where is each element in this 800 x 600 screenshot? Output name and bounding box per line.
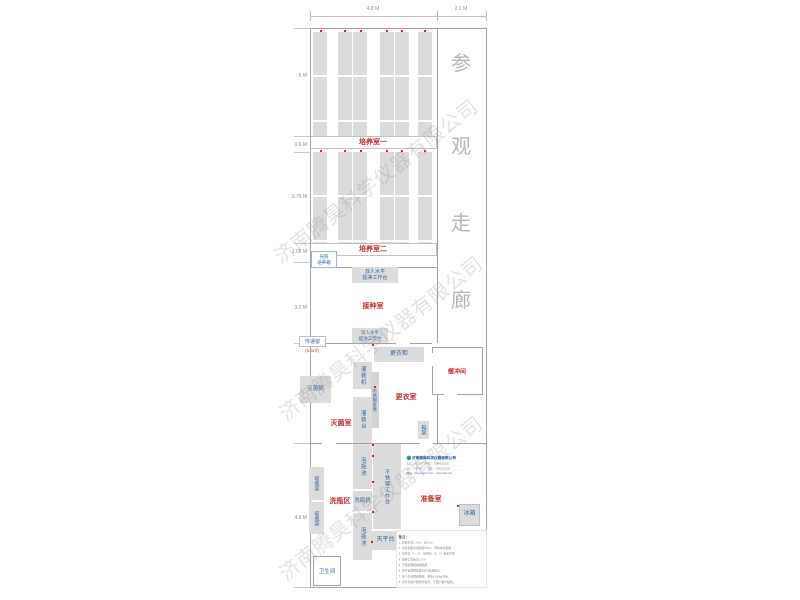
company-logo-icon [407, 455, 411, 459]
notes-inner: 备注： 1. 培养架长1.25m，宽0.5m 2. 培养架距离墙面留35cm，预… [397, 534, 486, 585]
power-dot [374, 386, 376, 388]
notes-title: 备注： [399, 534, 486, 539]
corridor-char-1: 参 [449, 47, 473, 76]
room-label-washing-area: 洗瓶区 [330, 496, 351, 506]
room-label-prep: 准备室 [421, 494, 442, 504]
company-name: 济南腾昊科学仪器有限公司 [412, 455, 456, 460]
filling-machine: 灌装机 [353, 362, 372, 389]
dimension-label-left: 4.9 M [281, 515, 307, 521]
clean-bench-1: 双人水平超净工作台 [352, 267, 398, 283]
dimension-tick [437, 11, 438, 21]
culture-shelf [418, 152, 432, 243]
soak-pool-1: 泡瓶池 [353, 444, 372, 489]
power-dot [372, 481, 374, 483]
power-dot [386, 150, 388, 152]
power-dot [360, 150, 362, 152]
power-dot [360, 30, 362, 32]
power-dot [424, 150, 426, 152]
dimension-tick [310, 11, 311, 21]
lab-floorplan: 济南腾昊科学仪器有限公司 济南腾昊科学仪器有限公司 济南腾昊科学仪器有限公司 4… [0, 0, 800, 600]
company-info-inner: 济南腾昊科学仪器有限公司 电话：0531-87799827、1586602255… [406, 455, 464, 475]
wall [310, 28, 487, 29]
balance-table: 天平台 [372, 531, 399, 550]
clean-bench-label: 双人水平超净工作台 [362, 269, 387, 281]
culture-shelf [395, 152, 409, 243]
dim-tick [294, 28, 310, 29]
dimension-line-top [310, 16, 487, 17]
company-info-card: 济南腾昊科学仪器有限公司 电话：0531-87799827、1586602255… [406, 452, 464, 492]
dimension-label-left: 0.6 M [281, 142, 307, 148]
dim-tick [294, 243, 310, 244]
stainless-bench: 不锈钢条凳 [371, 372, 379, 428]
locker: 更衣柜 [374, 347, 424, 362]
dim-tick [294, 443, 310, 444]
culture-shelf [353, 152, 367, 243]
door-opening [444, 394, 457, 397]
light-incubator: 光照培养箱 [311, 251, 337, 268]
power-dot [401, 30, 403, 32]
dim-tick [294, 587, 310, 588]
power-dot [320, 150, 322, 152]
wall [437, 395, 438, 443]
wall [437, 28, 438, 343]
pass-window: 传递窗 [299, 336, 326, 347]
drying-rack-1: 晾瓶架 [309, 467, 324, 500]
note-item: 8. 培养室窗户做遮光窗帘，不要小窗户贴膜。 [399, 579, 486, 585]
dimension-label-top-left: 4.8 M [365, 6, 382, 12]
room-label-toilet: 卫生间 [319, 567, 336, 575]
power-dot [344, 30, 346, 32]
room-label-sterilization: 灭菌室 [331, 418, 352, 428]
dimension-label-left: 1.05 M [281, 249, 307, 255]
room-label-culture2: 培养室二 [359, 244, 387, 254]
clean-bench-label: 双人水平超净工作台 [359, 330, 382, 341]
notes-card: 备注： 1. 培养架长1.25m，宽0.5m 2. 培养架距离墙面留35cm，预… [396, 530, 487, 588]
drying-rack-2: 晾瓶架 [309, 502, 324, 534]
power-dot [344, 150, 346, 152]
wall [433, 443, 486, 444]
shoe-rack: 鞋架 [418, 421, 429, 439]
power-dot [372, 444, 374, 446]
light-incubator-label: 光照培养箱 [317, 254, 331, 265]
dim-tick [294, 136, 310, 137]
culture-shelf [380, 152, 394, 243]
wall [486, 28, 487, 588]
power-dot [386, 30, 388, 32]
culture-shelf [353, 32, 367, 136]
power-dot [320, 30, 322, 32]
wall [310, 443, 322, 444]
culture-shelf [395, 32, 409, 136]
door-opening [431, 353, 434, 366]
dimension-label-left: 3.75 M [281, 194, 307, 200]
room-label-changing: 更衣室 [396, 392, 417, 402]
culture-shelf [313, 152, 327, 243]
power-dot [372, 455, 374, 457]
company-website: 网址：www.sqwt17.com www.srtkj.com [407, 471, 464, 476]
dimension-tick [486, 11, 487, 21]
power-dot [371, 541, 373, 543]
sterilizer-pot: 灭菌锅 [300, 376, 331, 403]
power-dot [424, 30, 426, 32]
culture-shelf [338, 152, 352, 243]
wall [410, 343, 432, 344]
filling-table: 灌装台 [353, 397, 372, 443]
bottle-washer: 洗瓶机 [353, 491, 372, 511]
room-label-buffer: 缓冲间 [448, 367, 466, 376]
culture-shelf [338, 32, 352, 136]
dimension-label-top-right: 2.1 M [453, 6, 470, 12]
power-dot [372, 344, 374, 346]
stainless-worktable: 不锈钢工作台 [373, 444, 401, 529]
corridor-char-2: 观 [449, 130, 473, 159]
dim-tick [294, 152, 310, 153]
culture-shelf [418, 32, 432, 136]
room-label-culture1: 培养室一 [359, 137, 387, 147]
room-label-inoculation: 接种室 [363, 301, 384, 311]
clean-bench-2: 双人水平超净工作台 [352, 328, 388, 343]
pass-window-area-note: (0.4㎡) [305, 348, 319, 354]
culture-shelf [380, 32, 394, 136]
corridor-char-4: 廊 [449, 284, 473, 313]
corridor-char-3: 走 [449, 207, 473, 236]
power-dot [457, 505, 459, 507]
dimension-label-left: 3.2 M [281, 305, 307, 311]
power-dot [401, 150, 403, 152]
fridge: 冰箱 [459, 504, 480, 526]
culture-shelf [313, 32, 327, 136]
dim-tick [294, 262, 310, 263]
company-logo-row: 济南腾昊科学仪器有限公司 [407, 455, 464, 460]
power-dot [372, 511, 374, 513]
soak-pool-2: 泡瓶池 [353, 513, 372, 560]
dimension-label-left: 5 M [281, 73, 307, 79]
